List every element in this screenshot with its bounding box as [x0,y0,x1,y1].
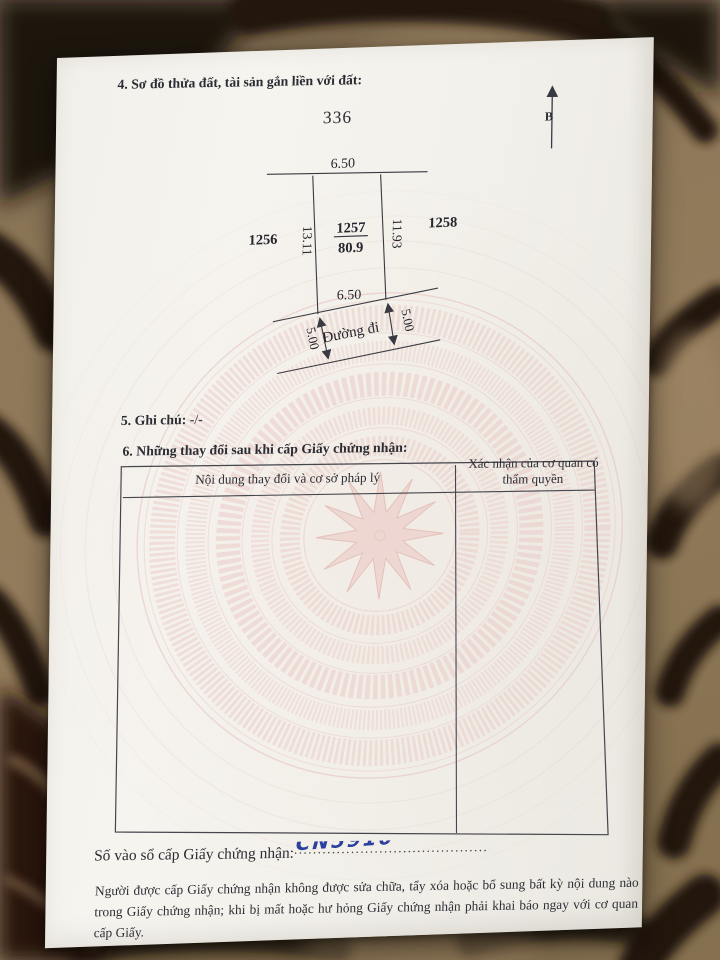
parcel-center: 1257 [336,220,365,237]
map-sheet-number: 336 [302,106,372,128]
table-col2-header: Xác nhận của cơ quan có thẩm quyền [459,455,608,489]
drum-watermark [45,179,654,892]
parcel-left: 1256 [248,232,277,249]
dim-road-left: 5.00 [303,326,322,352]
section5-heading: 5. Ghi chú: -/- [121,412,203,429]
page-artwork: B 6.50 1256 13.11 1257 80.9 11.93 1258 6… [45,37,654,948]
dim-bottom: 6.50 [337,288,362,304]
drum-star [315,469,444,601]
certificate-page: B 6.50 1256 13.11 1257 80.9 11.93 1258 6… [45,37,654,948]
dotted-leader: ........................................… [294,839,490,858]
parcel-right: 1258 [428,215,457,232]
dim-road-right: 5.00 [398,307,417,333]
dim-right-side: 11.93 [390,218,405,249]
section5-label: 5. Ghi chú: [121,412,187,428]
dim-top: 6.50 [331,156,356,172]
certificate-notice: Người được cấp Giấy chứng nhận không đượ… [93,873,639,944]
parcel-center-area: 80.9 [338,240,364,257]
dim-left-side: 13.11 [300,226,315,256]
photo-of-land-certificate: { "document": { "section4": { "heading":… [0,0,720,960]
north-label: B [545,109,554,123]
registry-label: Số vào sổ cấp Giấy chứng nhận: [94,845,294,865]
section5-value: -/- [190,412,203,427]
north-arrow-icon: B [544,86,553,148]
